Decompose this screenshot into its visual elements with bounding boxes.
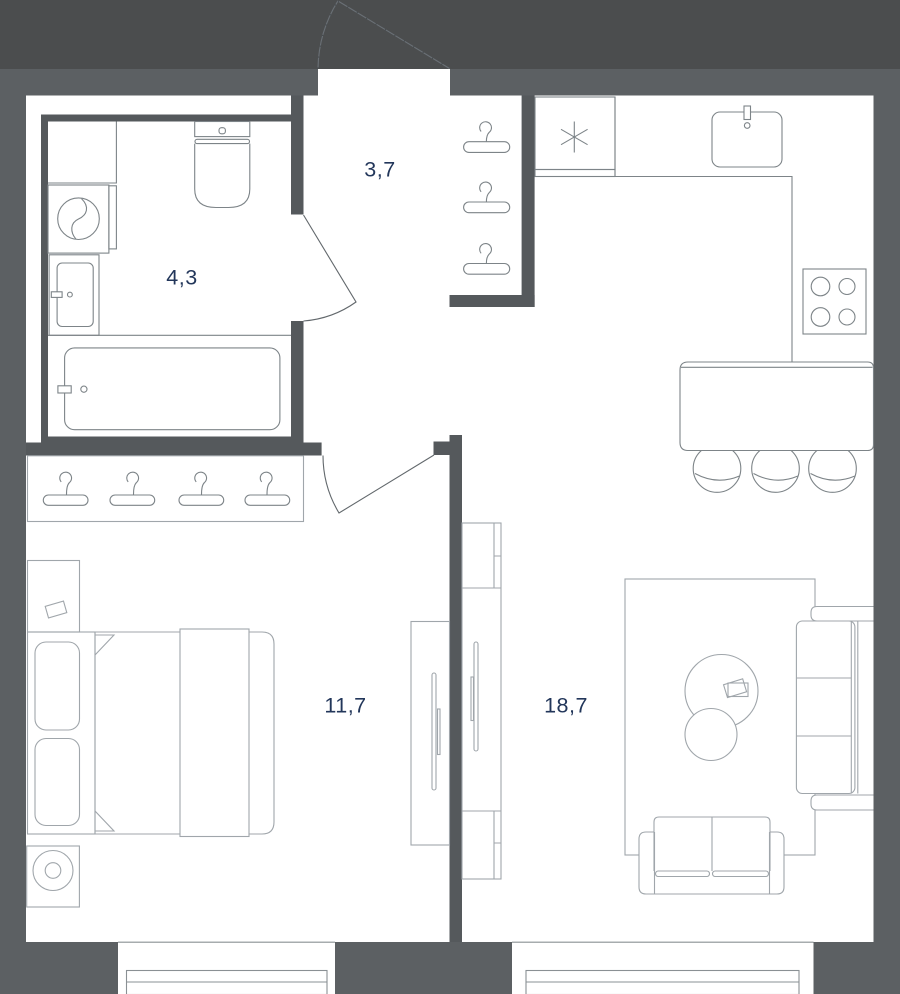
svg-text:4,3: 4,3 [166,266,197,290]
svg-text:11,7: 11,7 [324,694,366,718]
svg-text:18,7: 18,7 [544,694,588,718]
svg-text:3,7: 3,7 [364,158,395,182]
